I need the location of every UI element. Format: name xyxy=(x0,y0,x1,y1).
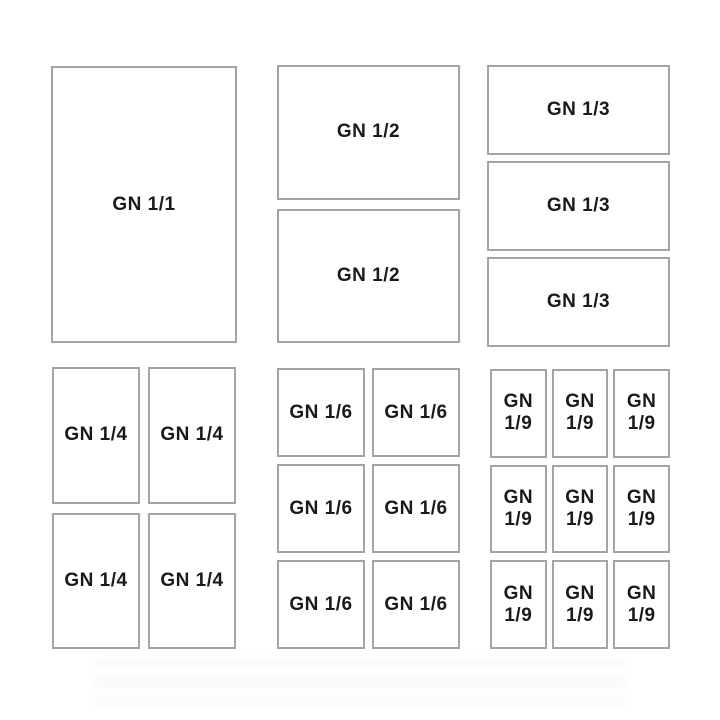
gn-1-6-pan-4: GN 1/6 xyxy=(372,464,460,553)
gn-1-6-pan-3: GN 1/6 xyxy=(277,464,365,553)
gn-1-1-pan: GN 1/1 xyxy=(51,66,237,343)
gn-1-9-pan-4: GN 1/9 xyxy=(490,465,547,554)
gn-1-4-pan-4: GN 1/4 xyxy=(148,513,236,650)
gn-1-6-pan-6: GN 1/6 xyxy=(372,560,460,649)
gastronorm-size-diagram: GN 1/1 GN 1/2 GN 1/2 GN 1/3 GN 1/3 GN 1/… xyxy=(0,0,720,720)
gn-1-9-panel: GN 1/9 GN 1/9 GN 1/9 GN 1/9 GN 1/9 GN 1/… xyxy=(490,369,670,649)
gn-1-9-pan-6: GN 1/9 xyxy=(613,465,670,554)
gn-1-6-pan-1: GN 1/6 xyxy=(277,368,365,457)
gn-1-4-pan-2: GN 1/4 xyxy=(148,367,236,504)
gn-1-9-pan-8: GN 1/9 xyxy=(552,560,609,649)
gn-1-9-pan-9: GN 1/9 xyxy=(613,560,670,649)
gn-1-9-pan-2: GN 1/9 xyxy=(552,369,609,458)
faint-watermark xyxy=(95,658,625,710)
gn-1-3-pan-3: GN 1/3 xyxy=(487,257,670,347)
gn-1-2-pan-1: GN 1/2 xyxy=(277,65,460,200)
gn-1-4-panel: GN 1/4 GN 1/4 GN 1/4 GN 1/4 xyxy=(52,367,236,649)
gn-1-4-pan-1: GN 1/4 xyxy=(52,367,140,504)
gn-1-9-pan-5: GN 1/9 xyxy=(552,465,609,554)
gn-1-3-panel: GN 1/3 GN 1/3 GN 1/3 xyxy=(487,65,670,347)
gn-1-9-pan-1: GN 1/9 xyxy=(490,369,547,458)
gn-1-6-pan-5: GN 1/6 xyxy=(277,560,365,649)
gn-1-1-panel: GN 1/1 xyxy=(51,66,237,343)
gn-1-2-panel: GN 1/2 GN 1/2 xyxy=(277,65,460,343)
gn-1-2-pan-2: GN 1/2 xyxy=(277,209,460,344)
gn-1-4-pan-3: GN 1/4 xyxy=(52,513,140,650)
gn-1-9-pan-3: GN 1/9 xyxy=(613,369,670,458)
gn-1-3-pan-1: GN 1/3 xyxy=(487,65,670,155)
gn-1-3-pan-2: GN 1/3 xyxy=(487,161,670,251)
gn-1-6-pan-2: GN 1/6 xyxy=(372,368,460,457)
gn-1-6-panel: GN 1/6 GN 1/6 GN 1/6 GN 1/6 GN 1/6 GN 1/… xyxy=(277,368,460,649)
gn-1-9-pan-7: GN 1/9 xyxy=(490,560,547,649)
